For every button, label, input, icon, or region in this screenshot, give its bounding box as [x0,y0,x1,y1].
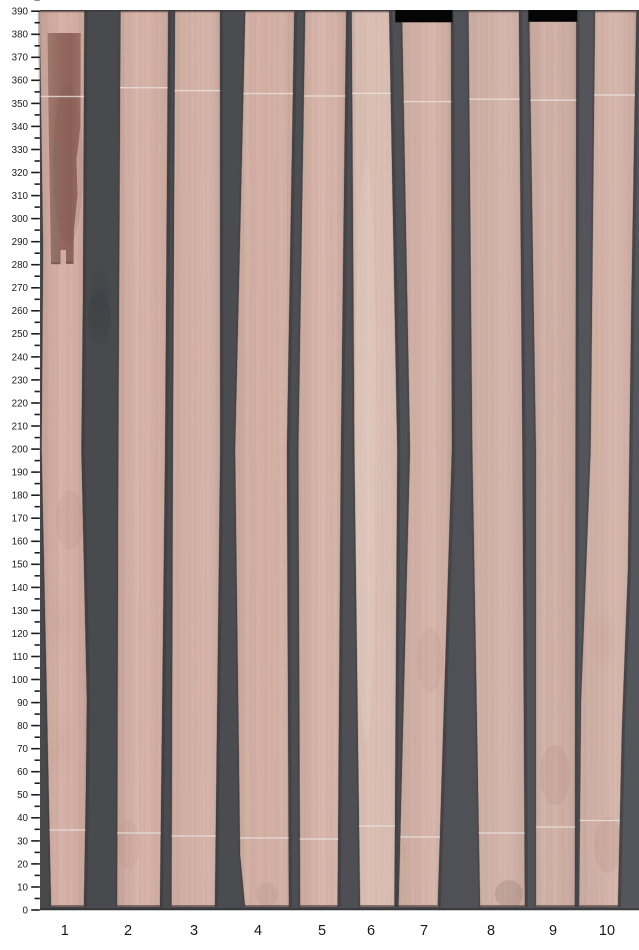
svg-text:40: 40 [17,813,28,824]
svg-text:1: 1 [61,923,69,939]
svg-text:290: 290 [12,237,29,248]
svg-text:150: 150 [12,560,29,571]
svg-text:180: 180 [12,491,29,502]
svg-text:240: 240 [12,352,29,363]
svg-text:0: 0 [23,905,29,916]
svg-text:50: 50 [17,790,28,801]
svg-text:390: 390 [12,7,29,18]
svg-text:370: 370 [12,53,29,64]
svg-text:270: 270 [12,283,29,294]
svg-text:350: 350 [12,99,29,110]
svg-text:80: 80 [17,721,28,732]
svg-text:10: 10 [599,923,615,939]
svg-text:190: 190 [12,468,29,479]
svg-text:100: 100 [12,675,29,686]
svg-text:320: 320 [12,168,29,179]
svg-text:310: 310 [12,191,29,202]
svg-text:160: 160 [12,537,29,548]
svg-text:300: 300 [12,214,29,225]
svg-text:10: 10 [17,882,28,893]
svg-text:170: 170 [12,514,29,525]
svg-text:280: 280 [12,260,29,271]
svg-text:250: 250 [12,329,29,340]
svg-text:200: 200 [12,445,29,456]
svg-text:6: 6 [367,923,375,939]
svg-text:360: 360 [12,76,29,87]
svg-text:5: 5 [318,923,326,939]
svg-text:90: 90 [17,698,28,709]
svg-text:340: 340 [12,122,29,133]
svg-text:3: 3 [190,923,198,939]
svg-text:260: 260 [12,306,29,317]
svg-text:70: 70 [17,744,28,755]
svg-text:130: 130 [12,606,29,617]
svg-text:140: 140 [12,583,29,594]
svg-text:7: 7 [420,923,428,939]
svg-text:4: 4 [254,923,262,939]
svg-text:220: 220 [12,398,29,409]
svg-text:230: 230 [12,375,29,386]
svg-text:60: 60 [17,767,28,778]
svg-text:380: 380 [12,30,29,41]
svg-text:110: 110 [12,652,28,663]
svg-text:20: 20 [17,859,28,870]
svg-text:30: 30 [17,836,28,847]
svg-text:330: 330 [12,145,29,156]
svg-text:8: 8 [487,923,495,939]
svg-text:9: 9 [549,923,557,939]
svg-text:120: 120 [12,629,29,640]
svg-text:210: 210 [12,421,29,432]
svg-text:2: 2 [124,923,132,939]
